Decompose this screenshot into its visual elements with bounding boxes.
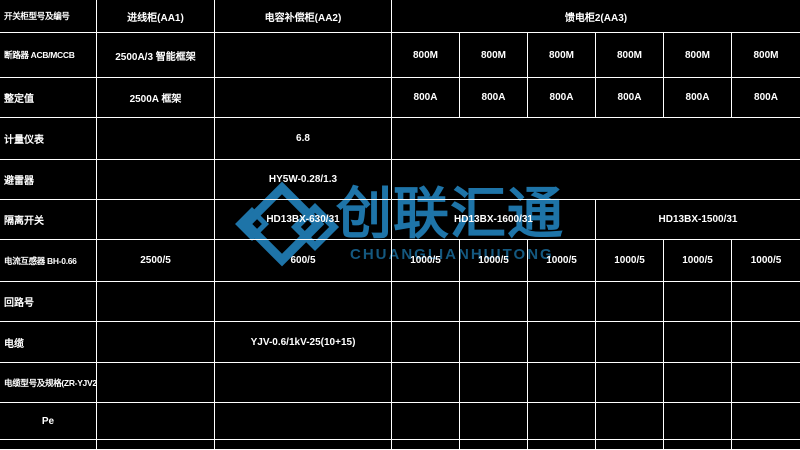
cell-r6-c6: 1000/5	[596, 240, 664, 282]
cell-r11-c0	[0, 440, 97, 450]
cell-r2-c4: 800A	[460, 78, 528, 118]
cell-r9-c8	[732, 363, 800, 403]
cell-r11-c2	[215, 440, 392, 450]
cell-r11-c3	[392, 440, 460, 450]
cell-r3-c3	[392, 118, 800, 160]
cell-r10-c5	[528, 403, 596, 440]
cell-r6-c3: 1000/5	[392, 240, 460, 282]
cell-r11-c1	[97, 440, 215, 450]
cell-r6-c4: 1000/5	[460, 240, 528, 282]
cell-r8-c8	[732, 322, 800, 363]
cell-r8-c0: 电缆	[0, 322, 97, 363]
cell-r11-c7	[664, 440, 732, 450]
cell-r0-c2: 电容补偿柜(AA2)	[215, 0, 392, 33]
cell-r2-c3: 800A	[392, 78, 460, 118]
cell-r5-c3: HD13BX-1600/31	[392, 200, 596, 240]
cell-r9-c4	[460, 363, 528, 403]
cell-r1-c7: 800M	[664, 33, 732, 78]
cell-r3-c2: 6.8	[215, 118, 392, 160]
cell-r8-c5	[528, 322, 596, 363]
cell-r1-c0: 断路器 ACB/MCCB	[0, 33, 97, 78]
cell-r6-c5: 1000/5	[528, 240, 596, 282]
cell-r8-c2: YJV-0.6/1kV-25(10+15)	[215, 322, 392, 363]
cell-r7-c8	[732, 282, 800, 322]
cell-r6-c7: 1000/5	[664, 240, 732, 282]
cell-r7-c6	[596, 282, 664, 322]
cell-r5-c2: HD13BX-630/31	[215, 200, 392, 240]
cell-r4-c3	[392, 160, 800, 200]
cell-r0-c1: 进线柜(AA1)	[97, 0, 215, 33]
cell-r8-c7	[664, 322, 732, 363]
cell-r10-c2	[215, 403, 392, 440]
cell-r6-c0: 电流互感器 BH-0.66	[0, 240, 97, 282]
cell-r8-c1	[97, 322, 215, 363]
cell-r9-c5	[528, 363, 596, 403]
cell-r10-c0: Pe	[0, 403, 97, 440]
cell-r1-c3: 800M	[392, 33, 460, 78]
cell-r5-c6: HD13BX-1500/31	[596, 200, 800, 240]
cell-r5-c1	[97, 200, 215, 240]
cell-r9-c6	[596, 363, 664, 403]
cell-r10-c4	[460, 403, 528, 440]
cell-r3-c0: 计量仪表	[0, 118, 97, 160]
cell-r11-c4	[460, 440, 528, 450]
cell-r7-c4	[460, 282, 528, 322]
cell-r5-c0: 隔离开关	[0, 200, 97, 240]
cell-r1-c4: 800M	[460, 33, 528, 78]
cell-r3-c1	[97, 118, 215, 160]
cad-spec-sheet: 创联汇通 CHUANGLIANHUITONG 开关柜型号及编号进线柜(AA1)电…	[0, 0, 800, 450]
cell-r9-c2	[215, 363, 392, 403]
cell-r1-c1: 2500A/3 智能框架	[97, 33, 215, 78]
switchgear-spec-table: 开关柜型号及编号进线柜(AA1)电容补偿柜(AA2)馈电柜2(AA3)断路器 A…	[0, 0, 800, 450]
cell-r2-c6: 800A	[596, 78, 664, 118]
cell-r7-c0: 回路号	[0, 282, 97, 322]
cell-r10-c3	[392, 403, 460, 440]
cell-r8-c6	[596, 322, 664, 363]
cell-r2-c1: 2500A 框架	[97, 78, 215, 118]
cell-r2-c8: 800A	[732, 78, 800, 118]
cell-r7-c3	[392, 282, 460, 322]
cell-r2-c0: 整定值	[0, 78, 97, 118]
cell-r8-c4	[460, 322, 528, 363]
cell-r2-c5: 800A	[528, 78, 596, 118]
cell-r9-c3	[392, 363, 460, 403]
cell-r6-c8: 1000/5	[732, 240, 800, 282]
cell-r11-c6	[596, 440, 664, 450]
cell-r9-c1	[97, 363, 215, 403]
cell-r7-c5	[528, 282, 596, 322]
cell-r8-c3	[392, 322, 460, 363]
cell-r1-c6: 800M	[596, 33, 664, 78]
cell-r6-c2: 600/5	[215, 240, 392, 282]
cell-r10-c1	[97, 403, 215, 440]
cell-r1-c5: 800M	[528, 33, 596, 78]
cell-r2-c2	[215, 78, 392, 118]
cell-r0-c3: 馈电柜2(AA3)	[392, 0, 800, 33]
cell-r4-c2: HY5W-0.28/1.3	[215, 160, 392, 200]
cell-r4-c1	[97, 160, 215, 200]
cell-r11-c5	[528, 440, 596, 450]
cell-r2-c7: 800A	[664, 78, 732, 118]
cell-r10-c8	[732, 403, 800, 440]
cell-r11-c8	[732, 440, 800, 450]
cell-r1-c2	[215, 33, 392, 78]
cell-r7-c2	[215, 282, 392, 322]
cell-r4-c0: 避雷器	[0, 160, 97, 200]
cell-r1-c8: 800M	[732, 33, 800, 78]
cell-r10-c7	[664, 403, 732, 440]
cell-r9-c7	[664, 363, 732, 403]
cell-r7-c1	[97, 282, 215, 322]
cell-r7-c7	[664, 282, 732, 322]
cell-r9-c0: 电缆型号及规格(ZR-YJV22)	[0, 363, 97, 403]
cell-r0-c0: 开关柜型号及编号	[0, 0, 97, 33]
cell-r10-c6	[596, 403, 664, 440]
cell-r6-c1: 2500/5	[97, 240, 215, 282]
